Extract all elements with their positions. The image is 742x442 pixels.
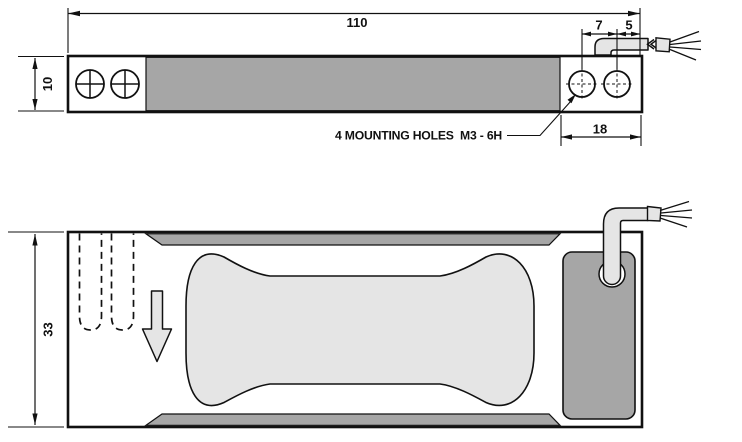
dim-mount-block-label: 18: [593, 122, 607, 137]
wire: [661, 210, 692, 213]
arrowhead: [561, 134, 572, 139]
top-edge-strip: [146, 234, 560, 245]
dim-height-label: 10: [40, 77, 55, 91]
dim-hole-pitch-label: 7: [595, 18, 602, 33]
arrowhead: [32, 58, 37, 69]
side-view-cable: [595, 32, 701, 61]
cable-sleeve: [648, 207, 662, 222]
load-cell-drawing: 110 10 7 5 18 4 MOUNTING HOLES M3 - 6H: [0, 0, 742, 442]
wire: [670, 41, 701, 45]
dim-hole-to-end-label: 5: [625, 18, 632, 33]
dim-width-label: 33: [41, 322, 56, 336]
arrowhead: [582, 32, 591, 37]
plan-view-cable: [604, 202, 693, 285]
arrowhead: [608, 32, 617, 37]
arrowhead: [628, 11, 640, 16]
wire: [670, 50, 696, 61]
mounting-note-label: 4 MOUNTING HOLES M3 - 6H: [335, 129, 502, 143]
side-view: [68, 32, 701, 113]
plan-view: [68, 202, 692, 428]
wire: [660, 218, 687, 227]
wire: [660, 202, 689, 211]
arrowhead: [630, 134, 641, 139]
side-view-center-bar: [146, 57, 560, 110]
flexure-pocket: [186, 254, 534, 405]
arrowhead: [32, 414, 37, 426]
wire: [670, 47, 701, 50]
drawing-canvas: 110 10 7 5 18 4 MOUNTING HOLES M3 - 6H: [0, 0, 742, 442]
bottom-edge-strip: [146, 414, 560, 425]
plan-view-dimensions: 33: [8, 232, 64, 427]
wire: [661, 216, 692, 219]
wire: [670, 32, 699, 43]
dim-length-label: 110: [347, 15, 368, 30]
arrowhead: [68, 11, 80, 16]
arrowhead: [32, 99, 37, 110]
arrowhead: [32, 234, 37, 246]
cable-sleeve: [656, 38, 670, 52]
